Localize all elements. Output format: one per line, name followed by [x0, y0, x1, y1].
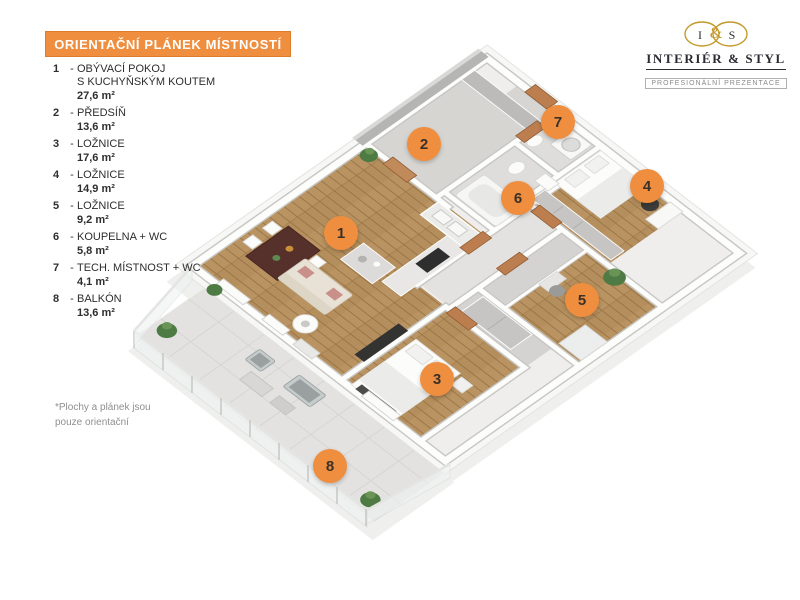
logo-letter-s: S [729, 28, 736, 42]
logo-tagline: PROFESIONÁLNÍ PREZENTACE [645, 78, 786, 89]
legend-number: 2 [53, 107, 67, 134]
room-area: 14,9 m² [77, 183, 268, 196]
room-name: LOŽNICE [77, 169, 268, 182]
legend-number: 4 [53, 169, 67, 196]
room-area: 9,2 m² [77, 214, 268, 227]
logo-rule [646, 69, 786, 70]
room-legend: 1 - OBÝVACÍ POKOJ S KUCHYŇSKÝM KOUTEM 27… [53, 63, 268, 324]
room-marker-7: 7 [541, 105, 575, 139]
room-area: 5,8 m² [77, 245, 268, 258]
logo-letter-i: I [698, 28, 702, 42]
legend-item: 7 - TECH. MÍSTNOST + WC 4,1 m² [53, 262, 268, 289]
room-name: PŘEDSÍŇ [77, 107, 268, 120]
legend-number: 6 [53, 231, 67, 258]
room-name: LOŽNICE [77, 138, 268, 151]
room-name: LOŽNICE [77, 200, 268, 213]
disclaimer-note: *Plochy a plánek jsou pouze orientační [55, 400, 151, 430]
room-name: TECH. MÍSTNOST + WC [77, 262, 268, 275]
legend-item: 3 - LOŽNICE 17,6 m² [53, 138, 268, 165]
room-area: 27,6 m² [77, 90, 268, 103]
legend-number: 1 [53, 63, 67, 103]
room-marker-3: 3 [420, 362, 454, 396]
room-marker-5: 5 [565, 283, 599, 317]
room-area: 13,6 m² [77, 307, 268, 320]
legend-number: 5 [53, 200, 67, 227]
legend-number: 3 [53, 138, 67, 165]
legend-item: 6 - KOUPELNA + WC 5,8 m² [53, 231, 268, 258]
room-name: BALKÓN [77, 293, 268, 306]
room-area: 13,6 m² [77, 121, 268, 134]
room-marker-2: 2 [407, 127, 441, 161]
legend-item: 2 - PŘEDSÍŇ 13,6 m² [53, 107, 268, 134]
company-logo: I & S INTERIÉR & STYL PROFESIONÁLNÍ PREZ… [638, 14, 794, 90]
logo-monogram: I & S [674, 14, 758, 50]
logo-name: INTERIÉR & STYL [638, 51, 794, 67]
page-title: ORIENTAČNÍ PLÁNEK MÍSTNOSTÍ [45, 31, 291, 57]
legend-item: 1 - OBÝVACÍ POKOJ S KUCHYŇSKÝM KOUTEM 27… [53, 63, 268, 103]
legend-number: 8 [53, 293, 67, 320]
legend-item: 5 - LOŽNICE 9,2 m² [53, 200, 268, 227]
logo-ampersand: & [710, 25, 723, 42]
legend-item: 8 - BALKÓN 13,6 m² [53, 293, 268, 320]
room-marker-6: 6 [501, 181, 535, 215]
legend-number: 7 [53, 262, 67, 289]
room-area: 4,1 m² [77, 276, 268, 289]
floorplan-page: 1 2 3 4 5 6 7 8 ORIENTAČNÍ PLÁNEK MÍSTNO… [0, 0, 800, 600]
room-name: OBÝVACÍ POKOJ S KUCHYŇSKÝM KOUTEM [77, 63, 268, 89]
room-marker-8: 8 [313, 449, 347, 483]
room-area: 17,6 m² [77, 152, 268, 165]
room-marker-4: 4 [630, 169, 664, 203]
room-marker-1: 1 [324, 216, 358, 250]
legend-item: 4 - LOŽNICE 14,9 m² [53, 169, 268, 196]
room-name: KOUPELNA + WC [77, 231, 268, 244]
